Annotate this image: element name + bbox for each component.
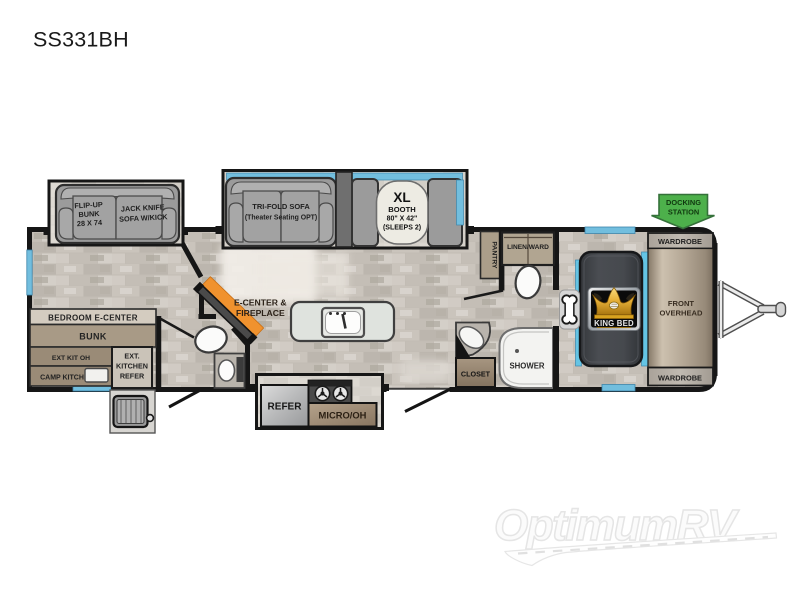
svg-text:BUNK: BUNK	[79, 332, 107, 342]
svg-text:E-CENTER &: E-CENTER &	[234, 298, 287, 308]
svg-text:REFER: REFER	[120, 372, 145, 381]
svg-text:FRONT: FRONT	[668, 299, 695, 308]
svg-text:28 X 74: 28 X 74	[77, 218, 104, 228]
svg-text:MICRO/OH: MICRO/OH	[319, 410, 367, 421]
svg-text:BEDROOM E-CENTER: BEDROOM E-CENTER	[48, 314, 138, 323]
svg-text:REFER: REFER	[268, 402, 303, 413]
svg-text:SHOWER: SHOWER	[509, 362, 544, 371]
svg-text:(Theater Seating OPT): (Theater Seating OPT)	[245, 215, 317, 222]
svg-text:OVERHEAD: OVERHEAD	[659, 309, 703, 318]
svg-text:BOOTH: BOOTH	[388, 205, 415, 214]
svg-text:WARDROBE: WARDROBE	[658, 374, 702, 383]
svg-text:PANTRY: PANTRY	[491, 241, 498, 269]
svg-text:EXT.: EXT.	[124, 352, 139, 361]
svg-text:FIREPLACE: FIREPLACE	[236, 308, 285, 318]
svg-text:KITCHEN: KITCHEN	[116, 362, 148, 371]
svg-text:(SLEEPS 2): (SLEEPS 2)	[383, 225, 421, 232]
svg-text:CLOSET: CLOSET	[461, 370, 491, 379]
svg-text:EXT KIT OH: EXT KIT OH	[52, 355, 90, 362]
svg-text:DOCKING: DOCKING	[666, 198, 701, 207]
svg-text:80" X 42": 80" X 42"	[387, 216, 418, 223]
svg-text:KING BED: KING BED	[594, 319, 634, 328]
svg-text:CAMP KITCH: CAMP KITCH	[40, 375, 84, 382]
svg-text:WARDROBE: WARDROBE	[658, 237, 702, 246]
svg-text:LINEN/WARD: LINEN/WARD	[507, 244, 549, 251]
svg-text:XL: XL	[393, 190, 410, 205]
svg-text:SS331BH: SS331BH	[33, 28, 129, 52]
svg-text:TRI-FOLD SOFA: TRI-FOLD SOFA	[252, 202, 310, 211]
svg-text:STATION: STATION	[668, 208, 699, 217]
